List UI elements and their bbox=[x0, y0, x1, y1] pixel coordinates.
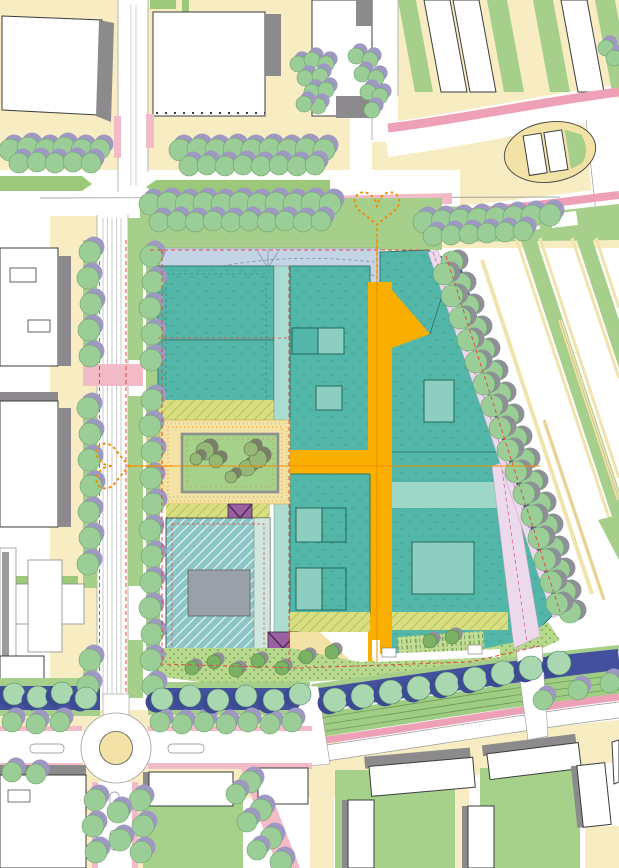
building-block bbox=[577, 763, 611, 828]
tree-icon bbox=[513, 221, 533, 241]
tree-icon bbox=[79, 527, 101, 549]
tree-icon bbox=[45, 153, 65, 173]
tree-icon bbox=[269, 155, 289, 175]
tree-icon bbox=[80, 293, 102, 315]
tree-icon bbox=[77, 267, 99, 289]
tree-icon bbox=[459, 224, 479, 244]
tree-icon bbox=[197, 155, 217, 175]
tree-icon bbox=[445, 630, 459, 644]
building-block bbox=[0, 775, 86, 868]
tree-icon bbox=[141, 545, 163, 567]
tree-icon bbox=[63, 152, 83, 172]
tree-icon bbox=[2, 762, 22, 782]
tree-icon bbox=[2, 712, 22, 732]
tree-icon bbox=[495, 222, 515, 242]
tree-icon bbox=[79, 649, 101, 671]
masterplan-map bbox=[0, 0, 619, 868]
tree-icon bbox=[139, 519, 161, 541]
tree-icon bbox=[325, 645, 339, 659]
building-block bbox=[0, 401, 58, 527]
tree-icon bbox=[237, 812, 257, 832]
tree-icon bbox=[226, 784, 246, 804]
tree-icon bbox=[167, 211, 187, 231]
tree-icon bbox=[215, 156, 235, 176]
tree-icon bbox=[600, 673, 619, 693]
tree-icon bbox=[79, 241, 101, 263]
tree-icon bbox=[489, 417, 511, 439]
tree-icon bbox=[142, 493, 164, 515]
tree-icon bbox=[84, 789, 106, 811]
tree-icon bbox=[433, 263, 455, 285]
tree-icon bbox=[179, 685, 201, 707]
tree-icon bbox=[140, 649, 162, 671]
tree-icon bbox=[149, 212, 169, 232]
tree-icon bbox=[85, 841, 107, 863]
tree-icon bbox=[423, 226, 443, 246]
tree-icon bbox=[465, 351, 487, 373]
tree-icon bbox=[216, 714, 236, 734]
tree-icon bbox=[207, 689, 229, 711]
tree-icon bbox=[142, 271, 164, 293]
building-block bbox=[468, 806, 494, 868]
tree-icon bbox=[221, 212, 241, 232]
parcel-band bbox=[392, 482, 506, 508]
tree-icon bbox=[257, 212, 277, 232]
tree-icon bbox=[244, 442, 258, 456]
tree-icon bbox=[251, 156, 271, 176]
tree-icon bbox=[407, 676, 431, 700]
tree-icon bbox=[9, 153, 29, 173]
tree-icon bbox=[296, 96, 312, 112]
tree-icon bbox=[364, 102, 380, 118]
tree-icon bbox=[519, 656, 543, 680]
tree-icon bbox=[78, 319, 100, 341]
tree-icon bbox=[172, 714, 192, 734]
tree-icon bbox=[150, 712, 170, 732]
tree-icon bbox=[139, 297, 161, 319]
tree-icon bbox=[304, 52, 320, 68]
tree-icon bbox=[441, 225, 461, 245]
tree-icon bbox=[293, 212, 313, 232]
tree-icon bbox=[323, 688, 347, 712]
tree-icon bbox=[235, 685, 257, 707]
tree-icon bbox=[233, 155, 253, 175]
existing-structure bbox=[188, 570, 250, 616]
tree-icon bbox=[263, 689, 285, 711]
tree-icon bbox=[568, 680, 588, 700]
tree-icon bbox=[82, 815, 104, 837]
tree-icon bbox=[26, 714, 46, 734]
tree-icon bbox=[75, 687, 97, 709]
building-block bbox=[149, 772, 233, 806]
tree-icon bbox=[229, 663, 243, 677]
tree-icon bbox=[311, 211, 331, 231]
tree-icon bbox=[247, 840, 267, 860]
tree-icon bbox=[79, 423, 101, 445]
tree-icon bbox=[239, 211, 259, 231]
tree-icon bbox=[141, 623, 163, 645]
tree-icon bbox=[540, 571, 562, 593]
tree-icon bbox=[435, 672, 459, 696]
tree-icon bbox=[79, 345, 101, 367]
masterplan-drawing bbox=[0, 0, 619, 868]
tree-icon bbox=[151, 688, 173, 710]
tree-icon bbox=[260, 714, 280, 734]
tree-icon bbox=[533, 690, 553, 710]
tree-icon bbox=[107, 801, 129, 823]
building-block bbox=[0, 248, 58, 366]
tree-icon bbox=[534, 549, 556, 571]
building-block bbox=[348, 800, 374, 868]
tree-icon bbox=[130, 841, 152, 863]
main-street-horizontal bbox=[288, 450, 392, 474]
tree-icon bbox=[140, 571, 162, 593]
tree-icon bbox=[225, 471, 237, 483]
tree-icon bbox=[299, 650, 313, 664]
tree-icon bbox=[606, 50, 619, 66]
tree-icon bbox=[185, 661, 199, 675]
tree-icon bbox=[27, 152, 47, 172]
tree-icon bbox=[81, 153, 101, 173]
tree-icon bbox=[140, 349, 162, 371]
tree-icon bbox=[287, 156, 307, 176]
tree-icon bbox=[238, 712, 258, 732]
tree-icon bbox=[547, 651, 571, 675]
tree-icon bbox=[289, 683, 311, 705]
tree-icon bbox=[354, 66, 370, 82]
building-block bbox=[153, 12, 265, 116]
tree-icon bbox=[275, 211, 295, 231]
tree-icon bbox=[207, 655, 221, 669]
tree-icon bbox=[194, 712, 214, 732]
tree-icon bbox=[139, 415, 161, 437]
tree-icon bbox=[141, 389, 163, 411]
tree-icon bbox=[463, 667, 487, 691]
tree-icon bbox=[539, 204, 561, 226]
tree-icon bbox=[348, 48, 364, 64]
tree-icon bbox=[50, 712, 70, 732]
tree-icon bbox=[441, 285, 463, 307]
tree-icon bbox=[251, 654, 265, 668]
building-block bbox=[2, 16, 102, 115]
tree-icon bbox=[305, 155, 325, 175]
tree-icon bbox=[282, 712, 302, 732]
tree-icon bbox=[26, 764, 46, 784]
tree-icon bbox=[185, 212, 205, 232]
tree-icon bbox=[477, 223, 497, 243]
tree-icon bbox=[77, 553, 99, 575]
tree-icon bbox=[141, 323, 163, 345]
tree-icon bbox=[449, 307, 471, 329]
tree-icon bbox=[457, 329, 479, 351]
tree-icon bbox=[423, 634, 437, 648]
tree-icon bbox=[141, 441, 163, 463]
tree-icon bbox=[379, 680, 403, 704]
tree-icon bbox=[513, 483, 535, 505]
tree-icon bbox=[179, 156, 199, 176]
tree-icon bbox=[505, 461, 527, 483]
tree-icon bbox=[77, 397, 99, 419]
tree-icon bbox=[351, 684, 375, 708]
tree-icon bbox=[78, 501, 100, 523]
tree-icon bbox=[203, 211, 223, 231]
tree-icon bbox=[139, 597, 161, 619]
tree-icon bbox=[140, 245, 162, 267]
tree-icon bbox=[190, 453, 202, 465]
tree-icon bbox=[109, 829, 131, 851]
tree-icon bbox=[132, 815, 154, 837]
tree-icon bbox=[140, 467, 162, 489]
tree-icon bbox=[491, 661, 515, 685]
